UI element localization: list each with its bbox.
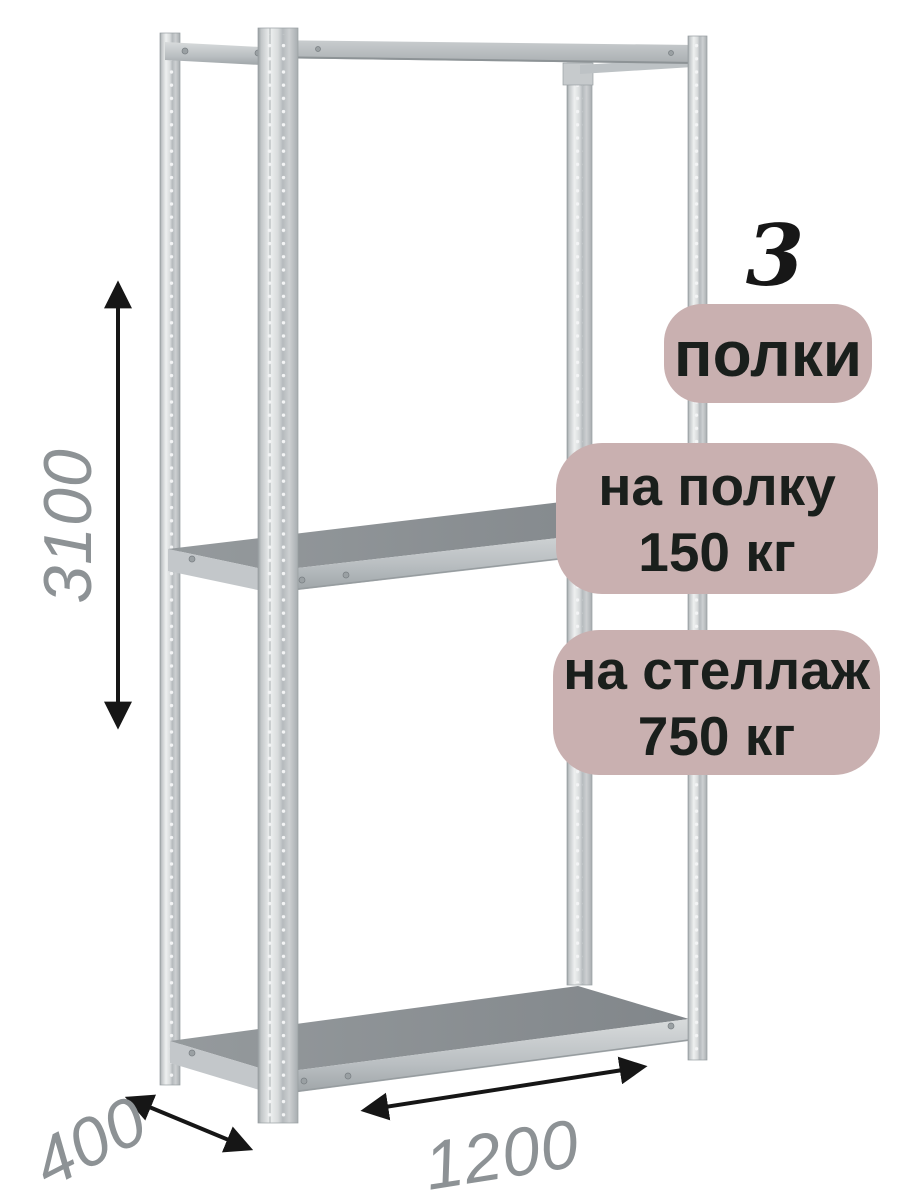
badge-shelf-load: на полку 150 кг — [556, 443, 878, 594]
width-dimension-label: 1200 — [419, 1105, 584, 1200]
badge-shelves-label: полки — [674, 317, 862, 391]
shelf-count: 3 — [700, 214, 850, 298]
rack-shelf-top — [165, 40, 695, 74]
badge-rack-load-line2: 750 кг — [563, 703, 870, 769]
height-dimension-label: 3100 — [30, 448, 106, 603]
badge-shelf-load-line2: 150 кг — [598, 519, 836, 585]
rack-shelf-bottom — [170, 986, 689, 1095]
badge-rack-load-line1: на стеллаж — [563, 637, 870, 703]
product-image: 3100 400 1200 3 полки на полку 150 кг на… — [0, 0, 900, 1200]
badge-shelf-load-line1: на полку — [598, 453, 836, 519]
rack-post-front-left — [258, 28, 298, 1123]
badge-shelves: полки — [664, 304, 872, 403]
shelving-rack-illustration: 3100 400 1200 — [0, 0, 900, 1200]
depth-dimension-label: 400 — [21, 1082, 159, 1200]
badge-rack-load: на стеллаж 750 кг — [553, 630, 880, 775]
